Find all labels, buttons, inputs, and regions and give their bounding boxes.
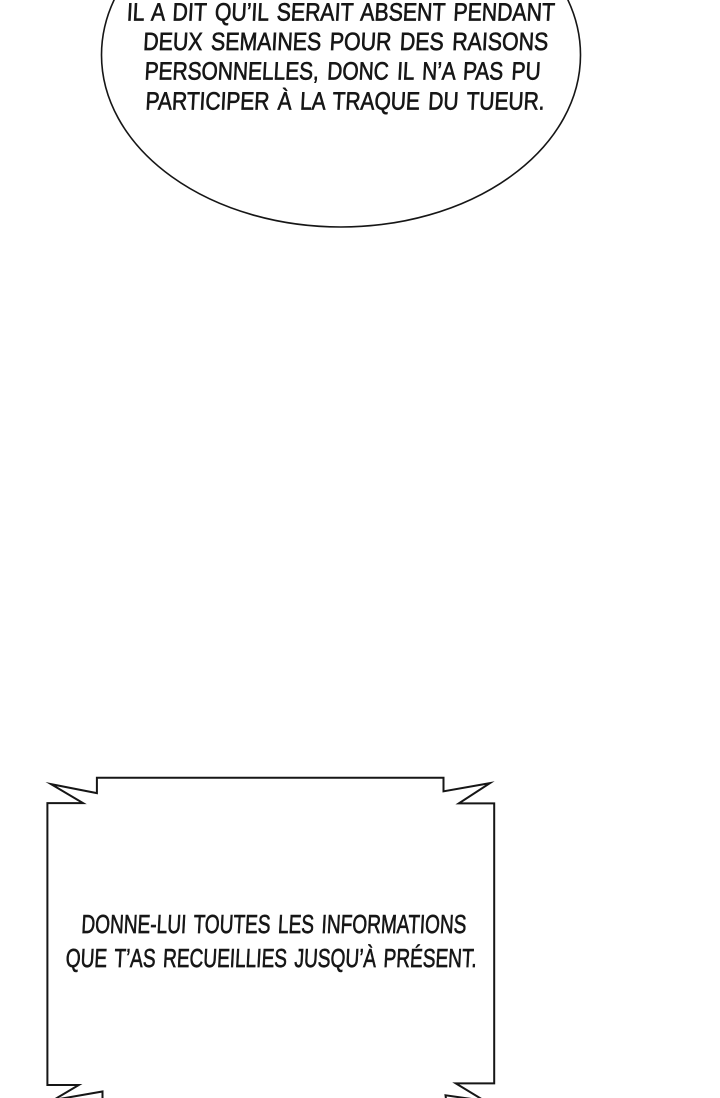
svg-text:PERSONNELLES, DONC IL N’A PAS: PERSONNELLES, DONC IL N’A PAS PU [144,58,541,86]
svg-text:QUE T’AS RECUEILLIES JUSQU’À P: QUE T’AS RECUEILLIES JUSQU’À PRÉSENT. [65,943,478,973]
svg-text:DEUX SEMAINES POUR DES RAISONS: DEUX SEMAINES POUR DES RAISONS [143,28,549,56]
svg-text:PARTICIPER À LA TRAQUE DU TUEU: PARTICIPER À LA TRAQUE DU TUEUR. [145,87,546,116]
svg-text:DONNE-LUI TOUTES LES INFORMATI: DONNE-LUI TOUTES LES INFORMATIONS [81,909,468,939]
svg-text:IL A DIT QU’IL SERAIT ABSENT P: IL A DIT QU’IL SERAIT ABSENT PENDANT [126,0,555,27]
